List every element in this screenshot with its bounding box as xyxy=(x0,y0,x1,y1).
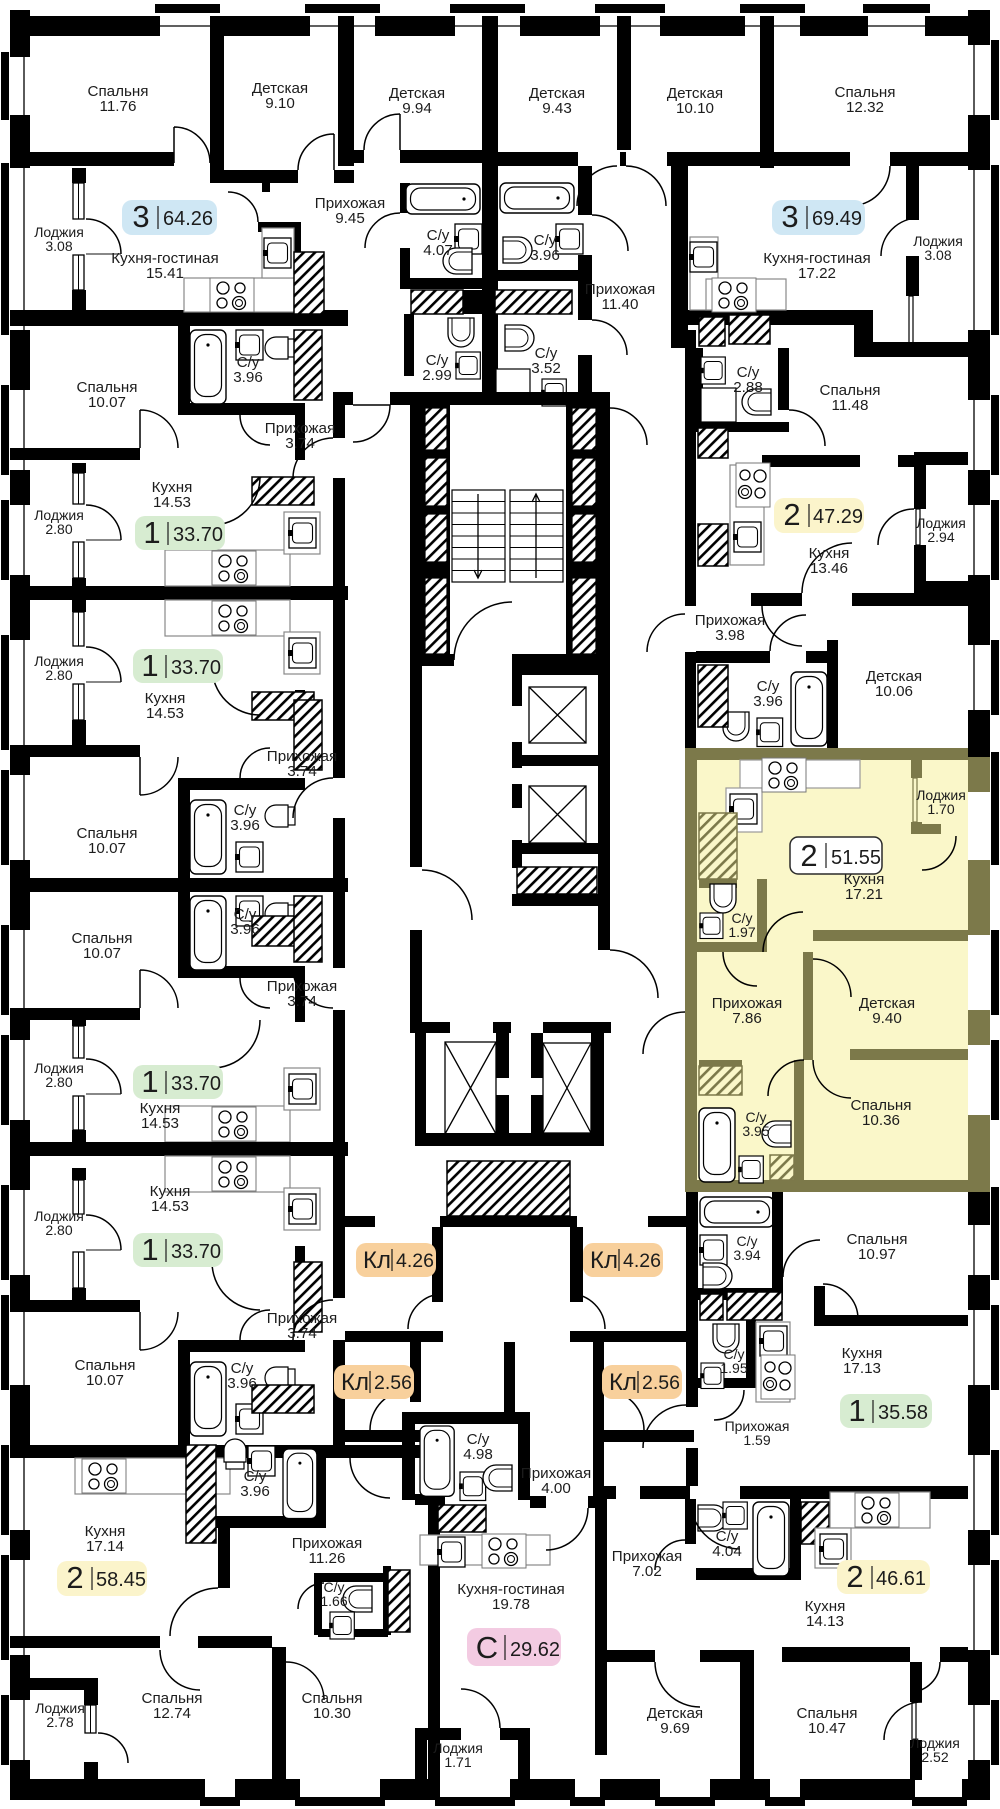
svg-text:С: С xyxy=(476,1630,498,1665)
svg-text:Кухня17.13: Кухня17.13 xyxy=(842,1345,883,1377)
svg-text:Кл: Кл xyxy=(590,1247,618,1274)
svg-text:3: 3 xyxy=(781,199,798,234)
svg-text:С/у1.95: С/у1.95 xyxy=(720,1346,747,1376)
svg-text:46.61: 46.61 xyxy=(876,1568,926,1590)
svg-text:35.58: 35.58 xyxy=(878,1402,928,1424)
svg-text:1: 1 xyxy=(141,1064,158,1099)
svg-text:Кл: Кл xyxy=(363,1247,391,1274)
svg-text:4.26: 4.26 xyxy=(623,1250,661,1272)
svg-text:Кухня17.14: Кухня17.14 xyxy=(85,1523,126,1555)
svg-text:2: 2 xyxy=(66,1560,83,1595)
svg-text:2.56: 2.56 xyxy=(374,1372,412,1394)
svg-text:Кл: Кл xyxy=(609,1369,637,1396)
svg-text:С/у4.98: С/у4.98 xyxy=(463,1431,493,1463)
svg-text:С/у3.96: С/у3.96 xyxy=(240,1468,270,1500)
svg-text:51.55: 51.55 xyxy=(831,847,881,869)
svg-text:С/у4.07: С/у4.07 xyxy=(423,227,453,259)
svg-text:2: 2 xyxy=(800,838,817,873)
svg-text:33.70: 33.70 xyxy=(171,657,221,679)
svg-text:3: 3 xyxy=(132,199,149,234)
svg-text:С/у1.97: С/у1.97 xyxy=(728,910,755,940)
svg-text:1: 1 xyxy=(143,515,160,550)
svg-text:Кухня17.21: Кухня17.21 xyxy=(844,871,885,903)
svg-text:58.45: 58.45 xyxy=(96,1569,146,1591)
svg-text:С/у3.94: С/у3.94 xyxy=(733,1233,760,1263)
svg-text:С/у3.96: С/у3.96 xyxy=(233,354,263,386)
svg-text:С/у3.52: С/у3.52 xyxy=(531,345,561,377)
svg-text:1: 1 xyxy=(141,648,158,683)
svg-text:64.26: 64.26 xyxy=(163,208,213,230)
svg-text:4.26: 4.26 xyxy=(396,1250,434,1272)
svg-text:С/у2.88: С/у2.88 xyxy=(733,364,763,396)
svg-text:Кухня14.53: Кухня14.53 xyxy=(140,1100,181,1132)
svg-text:Кухня14.53: Кухня14.53 xyxy=(150,1183,191,1215)
svg-text:33.70: 33.70 xyxy=(173,524,223,546)
svg-text:С/у3.96: С/у3.96 xyxy=(753,678,783,710)
svg-text:Кухня14.53: Кухня14.53 xyxy=(152,479,193,511)
svg-text:Кл: Кл xyxy=(341,1369,369,1396)
svg-text:С/у3.96: С/у3.96 xyxy=(230,906,260,938)
svg-text:47.29: 47.29 xyxy=(813,506,863,528)
svg-text:Кухня14.13: Кухня14.13 xyxy=(805,1598,846,1630)
svg-text:69.49: 69.49 xyxy=(812,208,862,230)
svg-text:С/у3.95: С/у3.95 xyxy=(742,1109,769,1139)
svg-text:С/у4.04: С/у4.04 xyxy=(712,1528,742,1560)
svg-text:29.62: 29.62 xyxy=(510,1639,560,1661)
svg-text:1: 1 xyxy=(141,1232,158,1267)
svg-text:С/у3.96: С/у3.96 xyxy=(227,1360,257,1392)
svg-text:Кухня13.46: Кухня13.46 xyxy=(809,545,850,577)
svg-text:33.70: 33.70 xyxy=(171,1241,221,1263)
svg-text:2.56: 2.56 xyxy=(642,1372,680,1394)
svg-text:2: 2 xyxy=(846,1559,863,1594)
svg-text:С/у1.66: С/у1.66 xyxy=(320,1579,347,1609)
svg-text:С/у3.96: С/у3.96 xyxy=(530,232,560,264)
svg-text:2: 2 xyxy=(783,497,800,532)
svg-text:33.70: 33.70 xyxy=(171,1073,221,1095)
svg-text:1: 1 xyxy=(848,1393,865,1428)
svg-text:С/у3.96: С/у3.96 xyxy=(230,802,260,834)
svg-text:С/у2.99: С/у2.99 xyxy=(422,352,452,384)
svg-text:Кухня14.53: Кухня14.53 xyxy=(145,690,186,722)
